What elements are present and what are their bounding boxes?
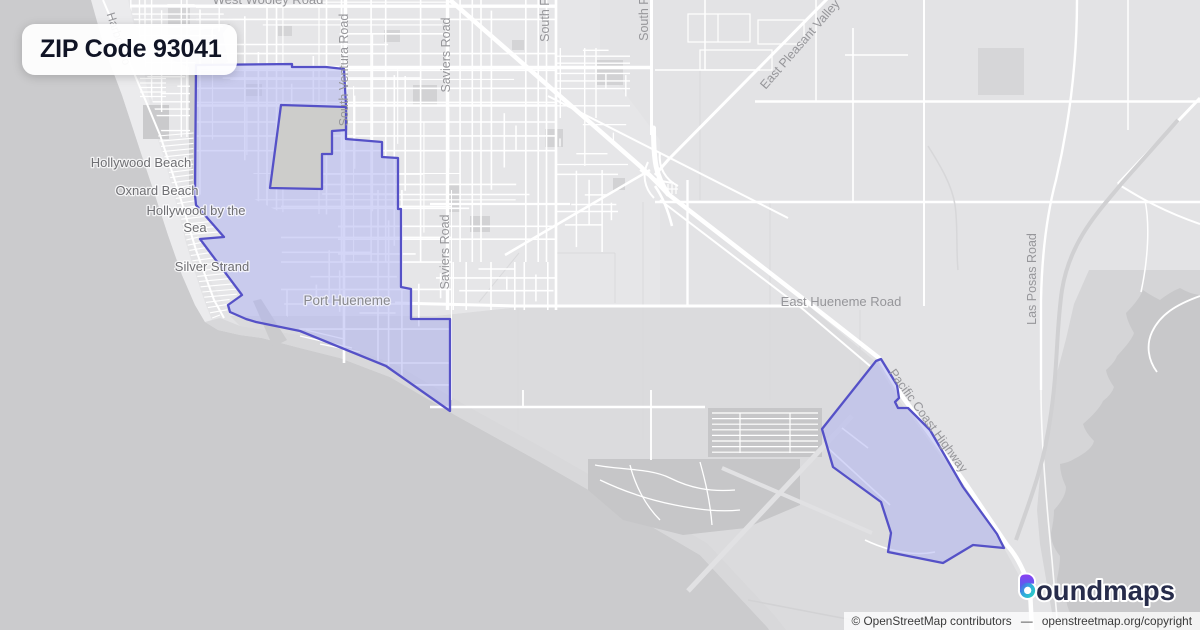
svg-text:Las Posas Road: Las Posas Road xyxy=(1025,233,1039,325)
svg-text:Sea: Sea xyxy=(183,220,207,235)
svg-text:Silver Strand: Silver Strand xyxy=(175,259,249,274)
svg-text:South F: South F xyxy=(538,0,552,42)
svg-text:Saviers Road: Saviers Road xyxy=(439,17,453,92)
svg-text:oundmaps: oundmaps xyxy=(1036,575,1175,606)
svg-text:Saviers Road: Saviers Road xyxy=(438,214,452,289)
svg-text:Port Hueneme: Port Hueneme xyxy=(303,293,390,308)
svg-text:Oxnard Beach: Oxnard Beach xyxy=(115,183,198,198)
svg-text:South F: South F xyxy=(637,0,651,41)
svg-text:Hollywood Beach: Hollywood Beach xyxy=(91,155,191,170)
svg-text:East Hueneme Road: East Hueneme Road xyxy=(781,294,902,309)
svg-text:South Ventura Road: South Ventura Road xyxy=(337,14,351,127)
svg-text:West Wooley Road: West Wooley Road xyxy=(213,0,324,7)
svg-text:Hollywood by the: Hollywood by the xyxy=(147,203,246,218)
